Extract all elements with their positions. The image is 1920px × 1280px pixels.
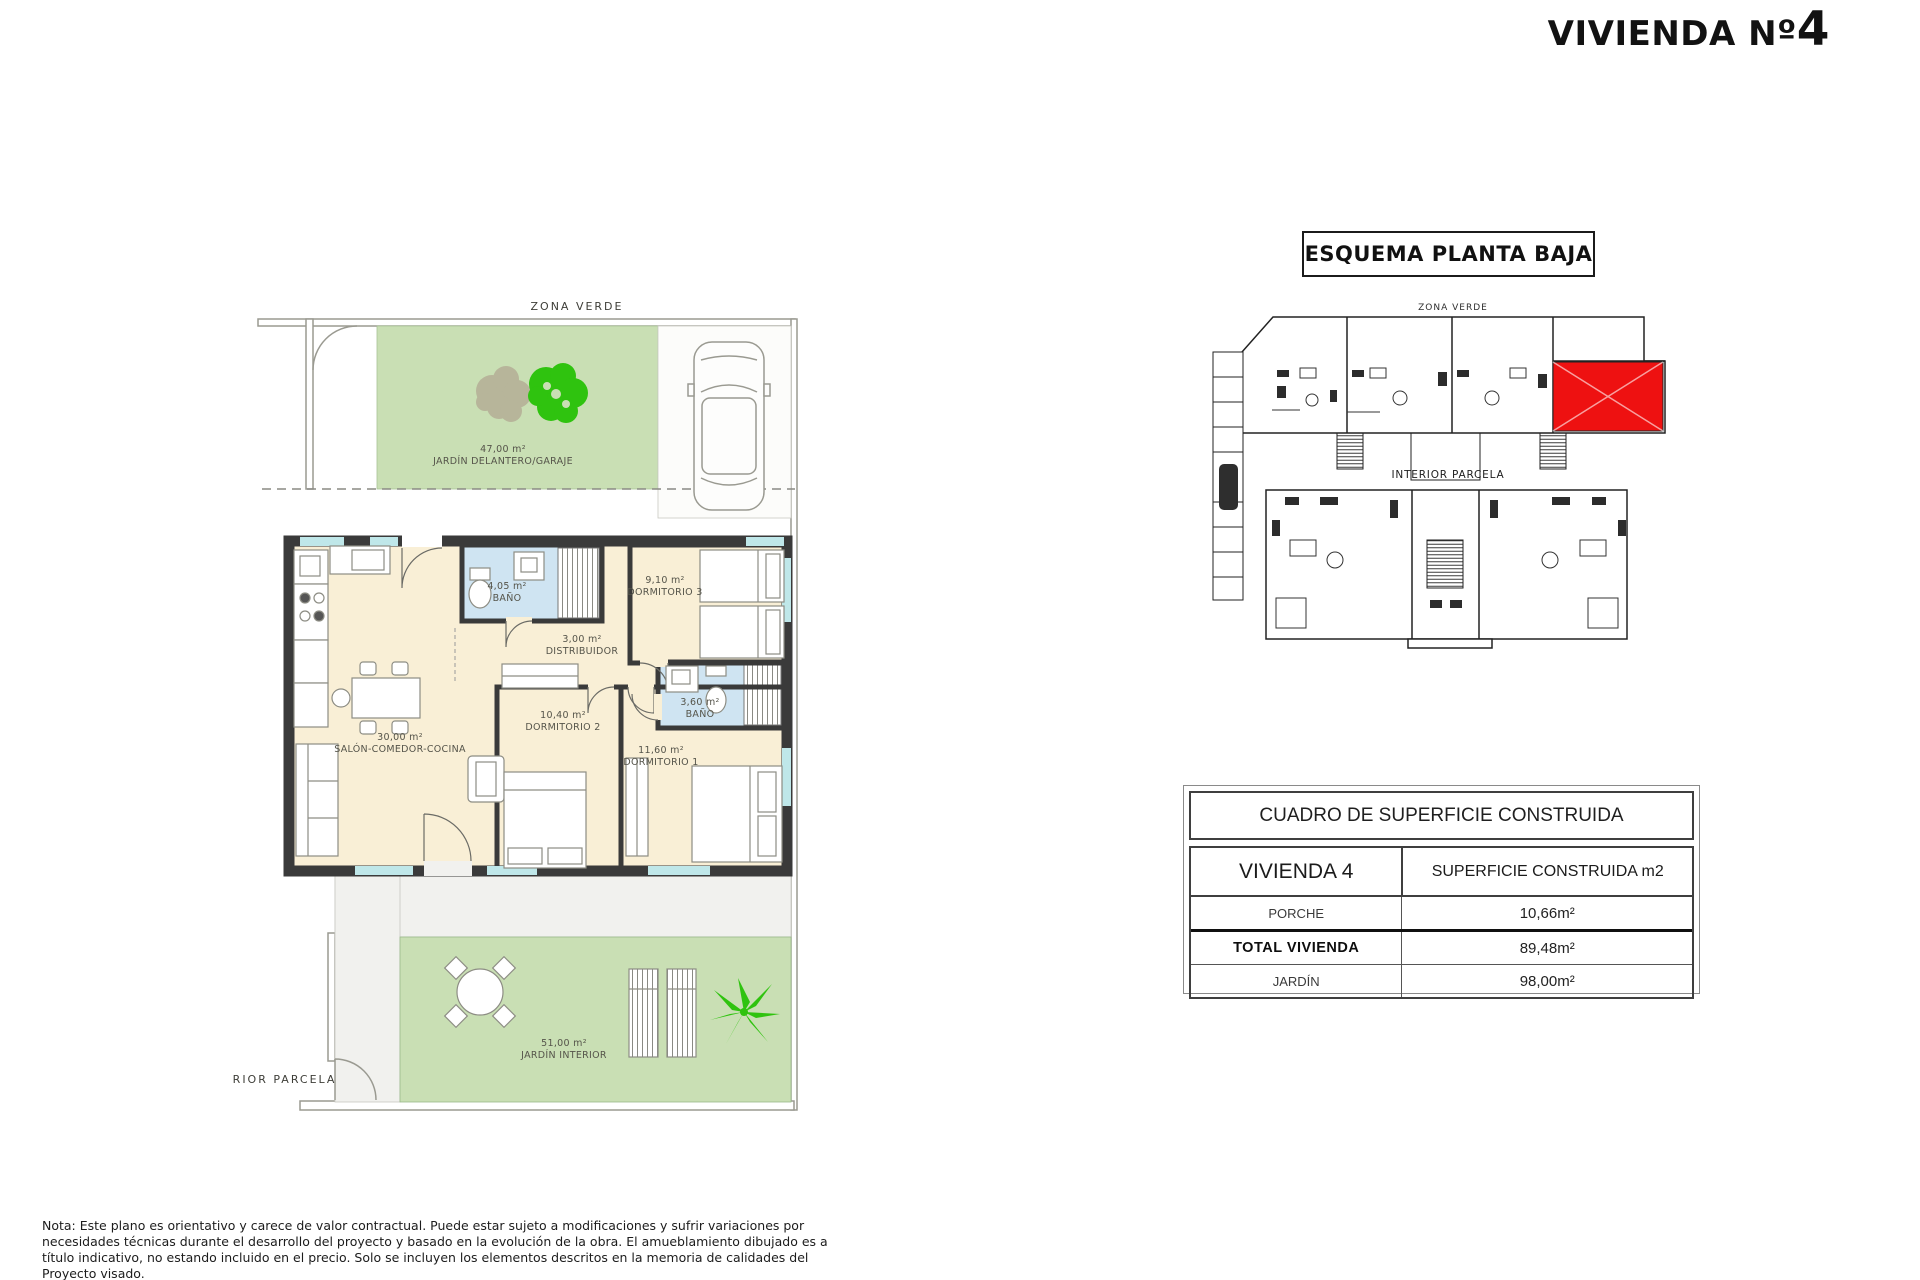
col-header-vivienda: VIVIENDA 4 <box>1191 848 1403 895</box>
site-interior-parcela-label: INTERIOR PARCELA <box>1392 469 1505 481</box>
svg-text:9,10 m²: 9,10 m² <box>645 575 684 586</box>
svg-text:DORMITORIO 1: DORMITORIO 1 <box>623 757 698 768</box>
shower-1-hatch <box>558 548 599 618</box>
row-value: 10,66m² <box>1402 897 1692 929</box>
site-car-icon <box>1219 464 1238 510</box>
row-value: 89,48m² <box>1402 932 1692 964</box>
svg-text:3,00 m²: 3,00 m² <box>562 634 601 645</box>
room-label-bathroom-1: 4,05 m² BAÑO <box>487 581 526 604</box>
page-title-number: 4 <box>1797 2 1830 57</box>
svg-text:BAÑO: BAÑO <box>493 593 522 604</box>
room-label-bathroom-2: 3,60 m² BAÑO <box>680 697 719 720</box>
interior-parcela-label: INTERIOR PARCELA <box>230 1073 336 1086</box>
row-value: 98,00m² <box>1402 965 1692 997</box>
svg-text:SALÓN-COMEDOR-COCINA: SALÓN-COMEDOR-COCINA <box>334 743 466 755</box>
svg-text:47,00 m²: 47,00 m² <box>480 444 526 455</box>
car-icon <box>688 342 770 510</box>
svg-text:11,60 m²: 11,60 m² <box>638 745 684 756</box>
site-zona-verde-label: ZONA VERDE <box>1418 303 1488 313</box>
note-spanish: Nota: Este plano es orientativo y carece… <box>42 1218 842 1280</box>
row-label: TOTAL VIVIENDA <box>1191 932 1402 964</box>
row-label: PORCHE <box>1191 897 1402 929</box>
svg-text:DORMITORIO 3: DORMITORIO 3 <box>627 587 702 598</box>
zona-verde-label: ZONA VERDE <box>531 300 624 313</box>
svg-text:51,00 m²: 51,00 m² <box>541 1038 587 1049</box>
svg-text:JARDÍN INTERIOR: JARDÍN INTERIOR <box>520 1049 607 1061</box>
page-title-text: VIVIENDA Nº <box>1548 14 1797 54</box>
site-elevator <box>1427 540 1463 588</box>
esquema-title: ESQUEMA PLANTA BAJA <box>1305 242 1593 266</box>
surface-table: CUADRO DE SUPERFICIE CONSTRUIDA VIVIENDA… <box>1183 785 1700 994</box>
svg-text:30,00 m²: 30,00 m² <box>377 732 423 743</box>
svg-text:3,60 m²: 3,60 m² <box>680 697 719 708</box>
svg-text:4,05 m²: 4,05 m² <box>487 581 526 592</box>
shower-2-hatch <box>744 665 781 725</box>
plan-sheet: VIVIENDA Nº4 <box>0 0 1920 1280</box>
site-plan: ZONA VERDE <box>1200 295 1680 655</box>
svg-text:DORMITORIO 2: DORMITORIO 2 <box>525 722 600 733</box>
svg-text:BAÑO: BAÑO <box>686 709 715 720</box>
footer-notes: Nota: Este plano es orientativo y carece… <box>42 1218 842 1280</box>
svg-text:DISTRIBUIDOR: DISTRIBUIDOR <box>546 646 619 657</box>
table-row-total: TOTAL VIVIENDA 89,48m² <box>1191 929 1692 964</box>
svg-text:10,40 m²: 10,40 m² <box>540 710 586 721</box>
surface-table-title: CUADRO DE SUPERFICIE CONSTRUIDA <box>1189 791 1694 840</box>
esquema-title-box: ESQUEMA PLANTA BAJA <box>1302 231 1595 277</box>
table-row-jardin: JARDÍN 98,00m² <box>1191 964 1692 997</box>
page-title: VIVIENDA Nº4 <box>1548 2 1830 57</box>
table-row-porche: PORCHE 10,66m² <box>1191 897 1692 929</box>
col-header-superficie: SUPERFICIE CONSTRUIDA m2 <box>1403 848 1692 895</box>
surface-table-body: VIVIENDA 4 SUPERFICIE CONSTRUIDA m2 PORC… <box>1189 846 1694 999</box>
row-label: JARDÍN <box>1191 965 1402 997</box>
main-floor-plan: ZONA VERDE 47,00 m² JARDÍN DELANTERO/GAR… <box>230 290 830 1130</box>
svg-text:JARDÍN DELANTERO/GARAJE: JARDÍN DELANTERO/GARAJE <box>432 455 573 467</box>
surface-table-header-row: VIVIENDA 4 SUPERFICIE CONSTRUIDA m2 <box>1191 848 1692 897</box>
